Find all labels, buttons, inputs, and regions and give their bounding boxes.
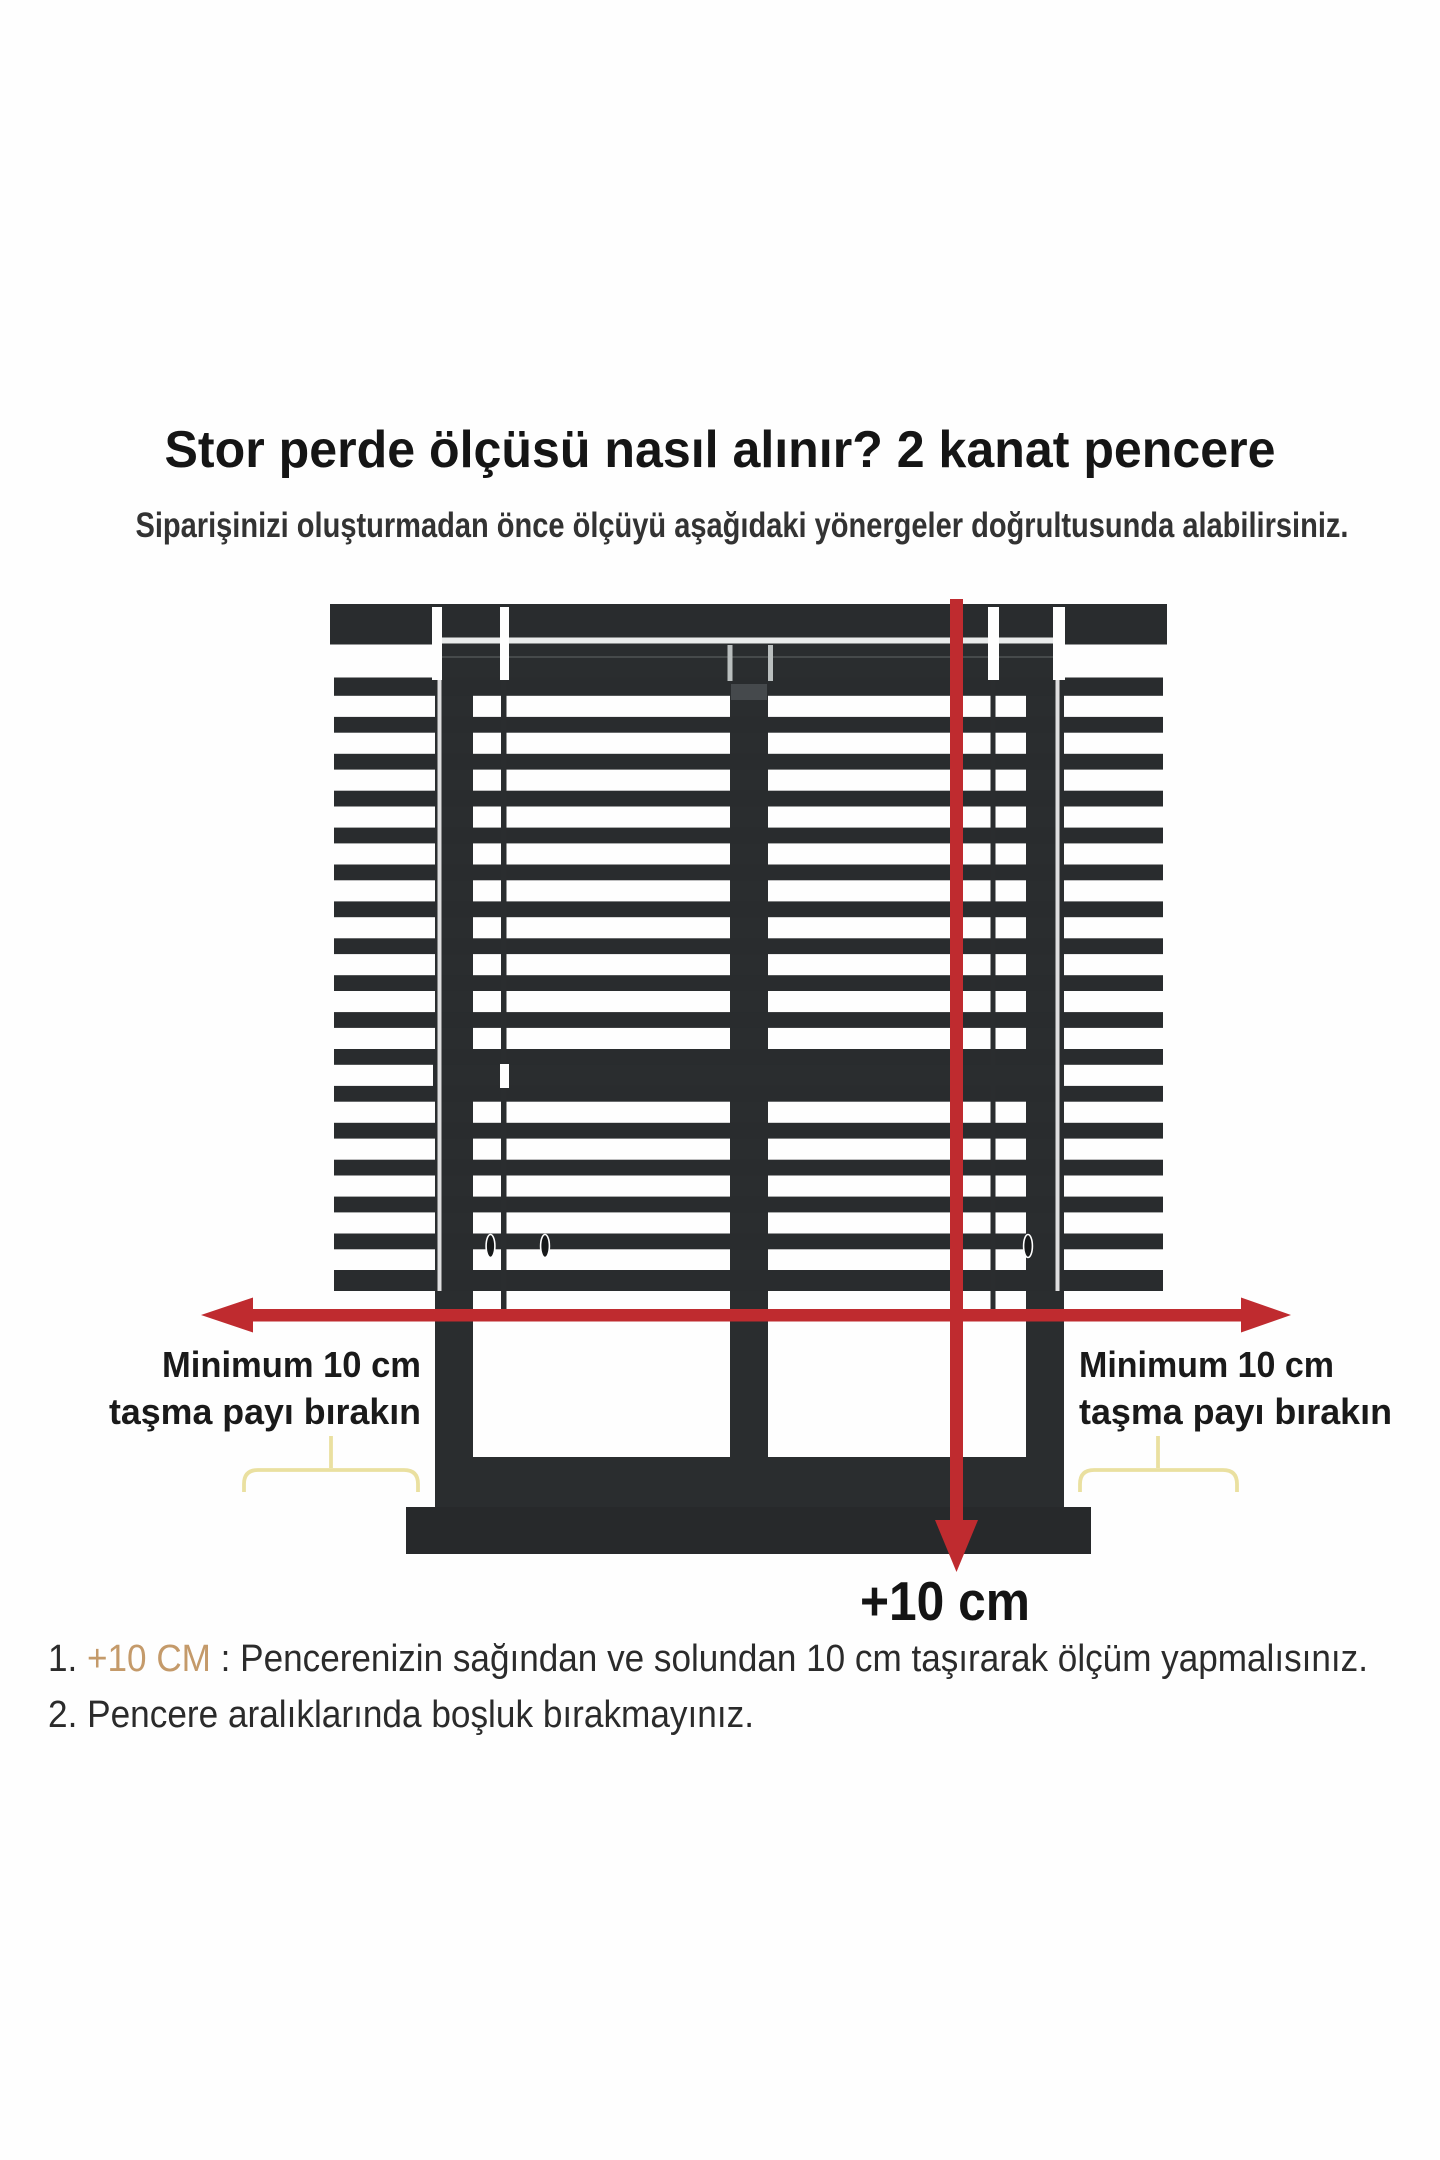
svg-text:taşma payı bırakın: taşma payı bırakın (1079, 1391, 1392, 1432)
svg-text:+10 cm: +10 cm (860, 1570, 1030, 1632)
svg-text:taşma payı bırakın: taşma payı bırakın (109, 1391, 421, 1432)
svg-text:Siparişinizi oluşturmadan önce: Siparişinizi oluşturmadan önce ölçüyü aş… (136, 506, 1349, 545)
svg-text:Minimum 10 cm: Minimum 10 cm (162, 1344, 421, 1385)
svg-text:Minimum 10 cm: Minimum 10 cm (1079, 1344, 1334, 1385)
svg-text:Stor perde ölçüsü nasıl alınır: Stor perde ölçüsü nasıl alınır? 2 kanat … (165, 421, 1276, 479)
svg-text:2. Pencere aralıklarında boşlu: 2. Pencere aralıklarında boşluk bırakmay… (48, 1694, 754, 1736)
svg-text:1. +10 CM : Pencerenizin sağın: 1. +10 CM : Pencerenizin sağından ve sol… (48, 1638, 1368, 1680)
